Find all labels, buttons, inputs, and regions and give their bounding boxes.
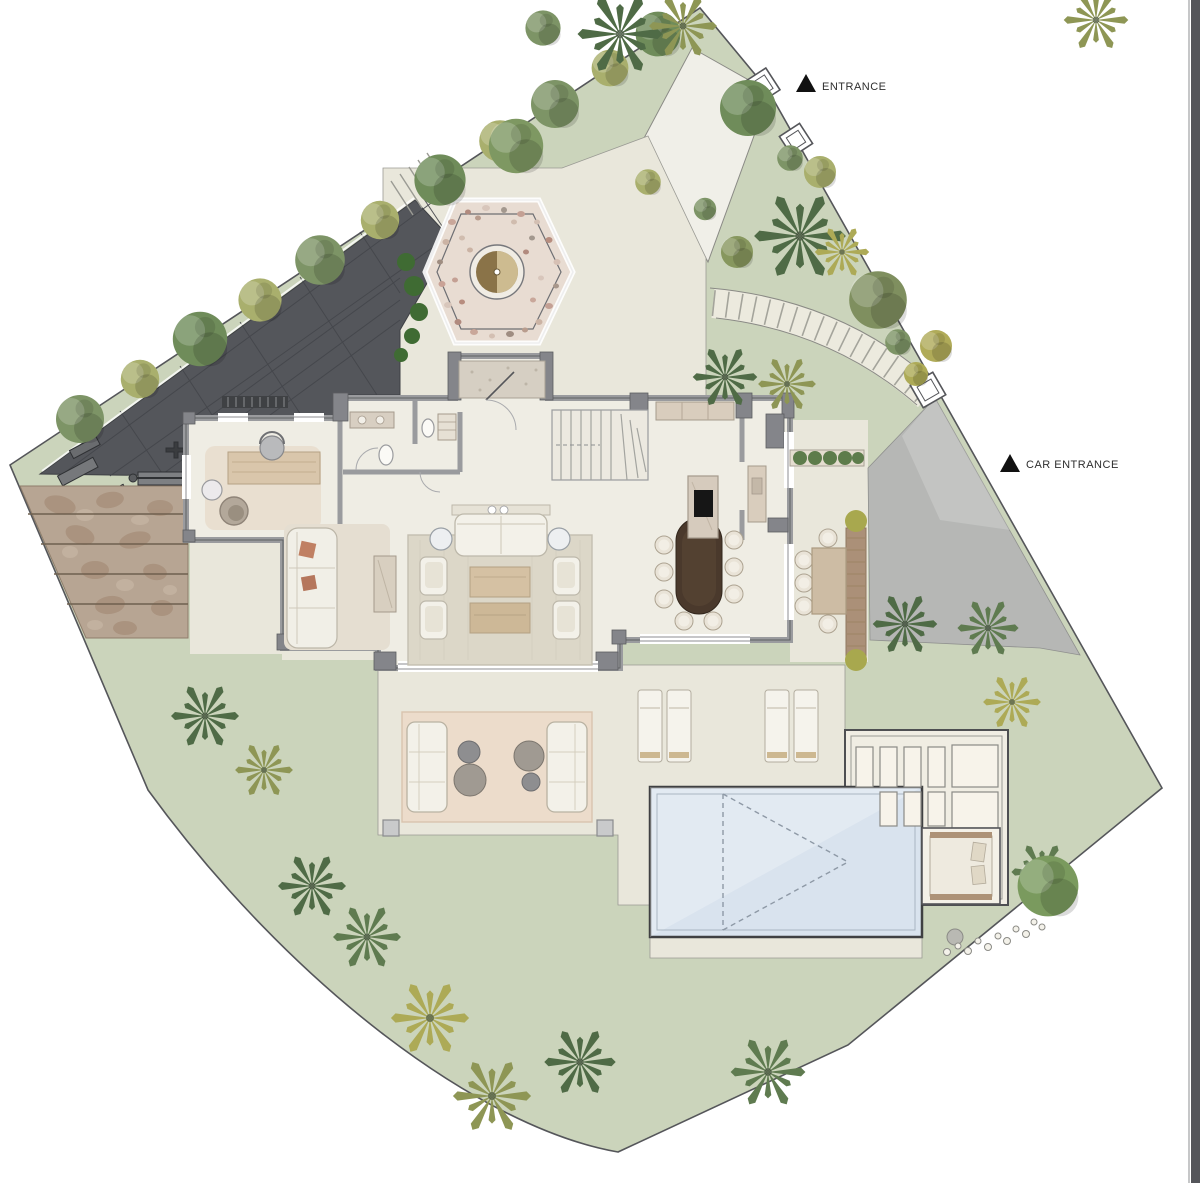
flagstone-steps (20, 486, 188, 638)
outdoor-lounge (383, 712, 613, 836)
wall-grate (222, 396, 288, 408)
round-table (514, 741, 544, 771)
side-table (548, 528, 570, 550)
north-cabinet-row (656, 402, 734, 420)
cooktop (694, 490, 713, 517)
vanity (350, 412, 394, 428)
site-plan: ENTRANCE CAR ENTRANCE (0, 0, 1200, 1183)
bush (845, 510, 867, 532)
column-base (383, 820, 399, 836)
round-table (454, 764, 486, 796)
porch-mat (459, 361, 545, 398)
pillow (971, 865, 986, 884)
side-table (202, 480, 222, 500)
tv-lounge (284, 524, 396, 650)
column-base (597, 820, 613, 836)
side-table (430, 528, 452, 550)
toilet (379, 445, 393, 465)
closet (438, 414, 456, 440)
office (202, 432, 321, 530)
page-border (1189, 0, 1200, 1183)
staircase (552, 410, 648, 480)
outdoor-sofa (407, 722, 447, 812)
fountain-hexagon (425, 200, 573, 343)
entrance-label: ENTRANCE (822, 81, 887, 93)
pillow (298, 541, 316, 559)
daybed (922, 828, 1000, 904)
living-room (408, 505, 592, 665)
desk-chair (260, 436, 284, 460)
pillow (971, 842, 986, 862)
outdoor-dining-table (812, 548, 846, 614)
car-entrance-label: CAR ENTRANCE (1026, 459, 1119, 471)
pillow (301, 575, 317, 591)
round-table (522, 773, 540, 791)
entrance-marker-icon (796, 74, 816, 92)
site-plan-page: ENTRANCE CAR ENTRANCE (0, 0, 1200, 1183)
outdoor-sofa (547, 722, 587, 812)
round-table (458, 741, 480, 763)
toilet-2 (422, 419, 434, 437)
sink (752, 478, 762, 494)
bush (845, 649, 867, 671)
wood-deck-strip (846, 528, 866, 658)
car-entrance-marker-icon (1000, 454, 1020, 472)
coffee-table (470, 603, 530, 633)
coffee-table (470, 567, 530, 597)
